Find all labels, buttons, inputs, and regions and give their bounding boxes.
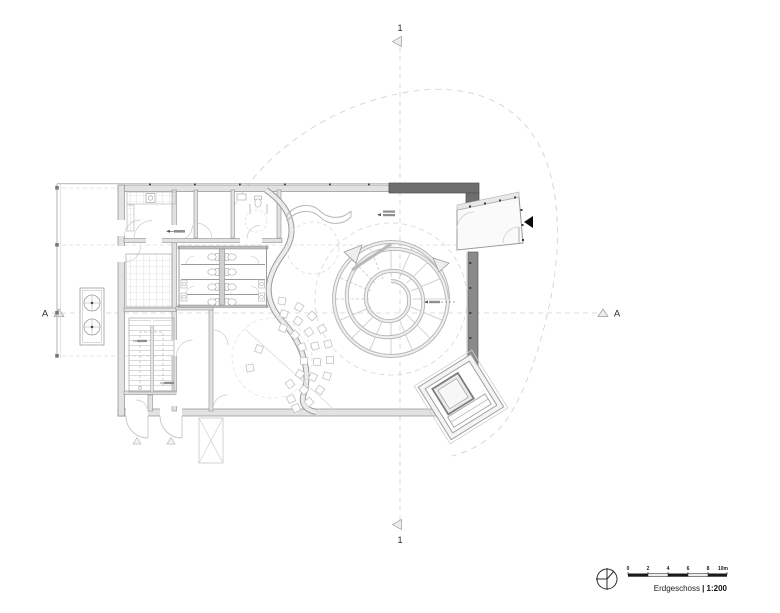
toilet-icon [208, 299, 219, 306]
toilet-icon [225, 269, 236, 276]
micro-label [166, 230, 185, 233]
section-arrow-bottom [393, 520, 402, 530]
seating-arcs [232, 297, 338, 413]
toilet-icon [225, 284, 236, 291]
section-label-1-bottom: 1 [397, 535, 402, 546]
section-label-a-left: A [42, 309, 49, 320]
exit-marker [167, 438, 175, 445]
floor-plan-sheet: 1 1 A A 0 2 4 6 8 10m [0, 0, 780, 613]
sink-icon [146, 194, 155, 203]
entrance-arrow-icon [524, 216, 533, 228]
dashed-circle-feature [287, 222, 339, 274]
section-label-1-top: 1 [397, 23, 402, 34]
service-block [124, 190, 282, 412]
chairs [246, 297, 334, 413]
toilet-icon [208, 254, 219, 261]
building-shell [57, 183, 479, 444]
shaft-unit [80, 288, 104, 345]
wall-top-light [118, 185, 389, 192]
wall-top-dark [389, 183, 479, 193]
wall-left [118, 185, 125, 416]
toilet-icon [225, 299, 236, 306]
section-label-a-right: A [614, 309, 621, 320]
exit-marker [133, 438, 141, 445]
scale-tick-0: 0 [627, 566, 630, 572]
tiled-room-floor [126, 254, 172, 307]
title-block: 0 2 4 6 8 10m Erdgeschoss | 1:200 [596, 566, 729, 593]
micro-label [424, 301, 455, 304]
toilet-icon [255, 196, 262, 207]
sink-icon [237, 194, 246, 200]
scale-bar: 0 2 4 6 8 10m [627, 566, 729, 577]
canopy-post [55, 311, 59, 315]
toilet-icon [208, 284, 219, 291]
wc-stalls [178, 246, 268, 308]
canopy-post [55, 243, 59, 247]
scale-tick-10m: 10m [718, 566, 729, 572]
scale-label: | 1:200 [702, 584, 727, 593]
north-symbol-icon [596, 568, 617, 590]
kitchen-counter [127, 192, 176, 231]
canopy-post [55, 354, 59, 358]
scale-tick-4: 4 [667, 566, 670, 572]
wavy-bench [287, 205, 351, 223]
exit-doors [126, 416, 182, 438]
micro-label [377, 211, 395, 217]
canopy-post [55, 186, 59, 190]
scale-tick-8: 8 [707, 566, 710, 572]
exterior-x-box [199, 418, 223, 463]
spiral-ramp [315, 223, 467, 375]
scale-tick-6: 6 [687, 566, 690, 572]
kiosk-structure [414, 350, 508, 444]
section-arrow-top [393, 37, 402, 47]
section-arrow-right [598, 309, 608, 317]
floor-label: Erdgeschoss [654, 584, 700, 593]
scale-tick-2: 2 [647, 566, 650, 572]
accessible-wc [237, 194, 267, 244]
floor-plan-drawing: 1 1 A A 0 2 4 6 8 10m [0, 0, 780, 613]
toilet-icon [225, 254, 236, 261]
toilet-icon [208, 269, 219, 276]
